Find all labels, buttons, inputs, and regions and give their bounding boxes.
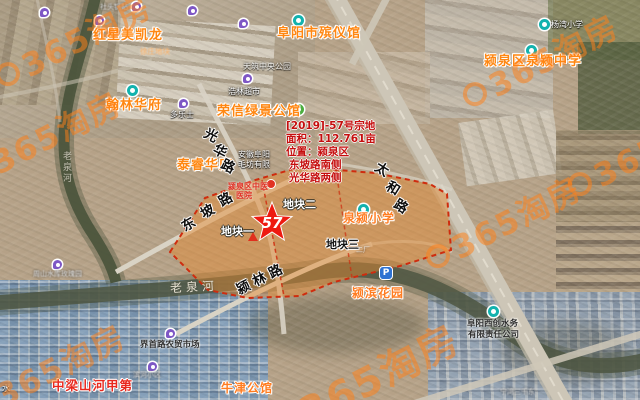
- poi-marker-icon: [95, 16, 104, 25]
- poi-label-haolin: 浩林超市: [228, 87, 260, 96]
- poi-label-xichuang-2: 有限责任公司: [468, 331, 519, 341]
- satellite-map[interactable]: 57 P 红星美凯龙 阜阳市殡仪馆 荣信绿景公馆 翰林华府 泰睿华府 颍泉区泉颍…: [0, 0, 640, 400]
- poi-label-hanlin: 翰林华府: [106, 99, 162, 114]
- poi-hospital-icon: [267, 180, 275, 188]
- parcel-label-1: 地块一: [221, 226, 254, 239]
- poi-school-icon: [539, 19, 550, 30]
- poi-marker-icon: [40, 8, 49, 17]
- poi-label-zhongliang: 中梁山河甲第: [52, 379, 133, 393]
- parcel-annotation-line1: [2019]-57号宗地: [286, 120, 375, 132]
- parcel-annotation-line4: 东坡路南侧: [289, 159, 342, 171]
- poi-marker-icon: [132, 2, 141, 11]
- poi-label-niujin: 牛津公馆: [221, 382, 273, 396]
- poi-label-xuzhuang: 徐庄地块: [140, 48, 170, 57]
- poi-marker-icon: [179, 99, 188, 108]
- poi-marker-icon: [239, 19, 248, 28]
- river-label-vertical: 泉: [63, 163, 72, 173]
- road-minor-tl: [36, 0, 60, 122]
- poi-label-binyiguan: 阜阳市殡仪馆: [277, 27, 361, 42]
- parcel-annotation-line3: 位置：颍泉区: [286, 146, 349, 158]
- poi-label-ningwan: 宁湾三千东: [500, 388, 535, 396]
- poi-marker-icon: [148, 362, 157, 371]
- poi-label-partial: 水: [2, 384, 10, 393]
- poi-funeral-home-icon: [293, 15, 304, 26]
- poi-label-quanying-middle: 颍泉区泉颍中学: [484, 55, 582, 70]
- river-label-vertical: 老: [63, 152, 72, 162]
- star-57-number: 57: [258, 214, 286, 232]
- poi-label-zhongyang: 天筑中央公园: [243, 62, 291, 71]
- poi-label-zhoushan: 周山水库玫瑰园: [33, 270, 82, 278]
- poi-marker-icon: [188, 6, 197, 15]
- parcel-label-3-sub: 二厂: [356, 246, 370, 254]
- poi-label-maofang-2: 毛坊有限: [238, 160, 270, 169]
- poi-marker-icon: [53, 260, 62, 269]
- poi-market-icon: [166, 329, 175, 338]
- poi-label-zhongyi-1: 颍泉区中医: [228, 182, 268, 191]
- poi-label-jieshoulu: 界首路农贸市场: [140, 341, 200, 351]
- poi-label-rongxin: 荣信绿景公馆: [217, 105, 301, 120]
- parcel-annotation-line2: 面积：112.761亩: [286, 133, 376, 145]
- poi-label-maofang-1: 安徽阜阳: [238, 150, 270, 159]
- poi-residence-icon: [127, 85, 138, 96]
- poi-label-zhongyi-2: 医院: [236, 191, 252, 200]
- poi-label-hongxing: 红星美凯龙: [93, 29, 163, 44]
- poi-label-yingbin: 颍滨花园: [352, 287, 404, 301]
- poi-company-icon: [488, 306, 499, 317]
- parcel-label-2: 地块二: [283, 199, 316, 212]
- poi-label-binhe: 滨河小区: [133, 371, 161, 379]
- parcel-label-3: 地块三: [326, 239, 359, 252]
- poi-supermarket-icon: [243, 74, 252, 83]
- poi-label-duoleshi: 多乐士: [170, 110, 194, 119]
- poi-label-quanying-primary: 泉颍小学: [343, 212, 395, 226]
- parcel-annotation-line5: 光华路两侧: [289, 172, 342, 184]
- poi-label-yangwan: 杨湾小学: [551, 20, 583, 29]
- parking-icon: P: [380, 267, 392, 279]
- river-label-vertical: 河: [63, 174, 72, 184]
- poi-label-shetou: 社头锅贴: [100, 3, 128, 11]
- river-label-laoquanhe: 老泉河: [170, 280, 219, 296]
- poi-label-xichuang-1: 阜阳西创水务: [467, 320, 518, 330]
